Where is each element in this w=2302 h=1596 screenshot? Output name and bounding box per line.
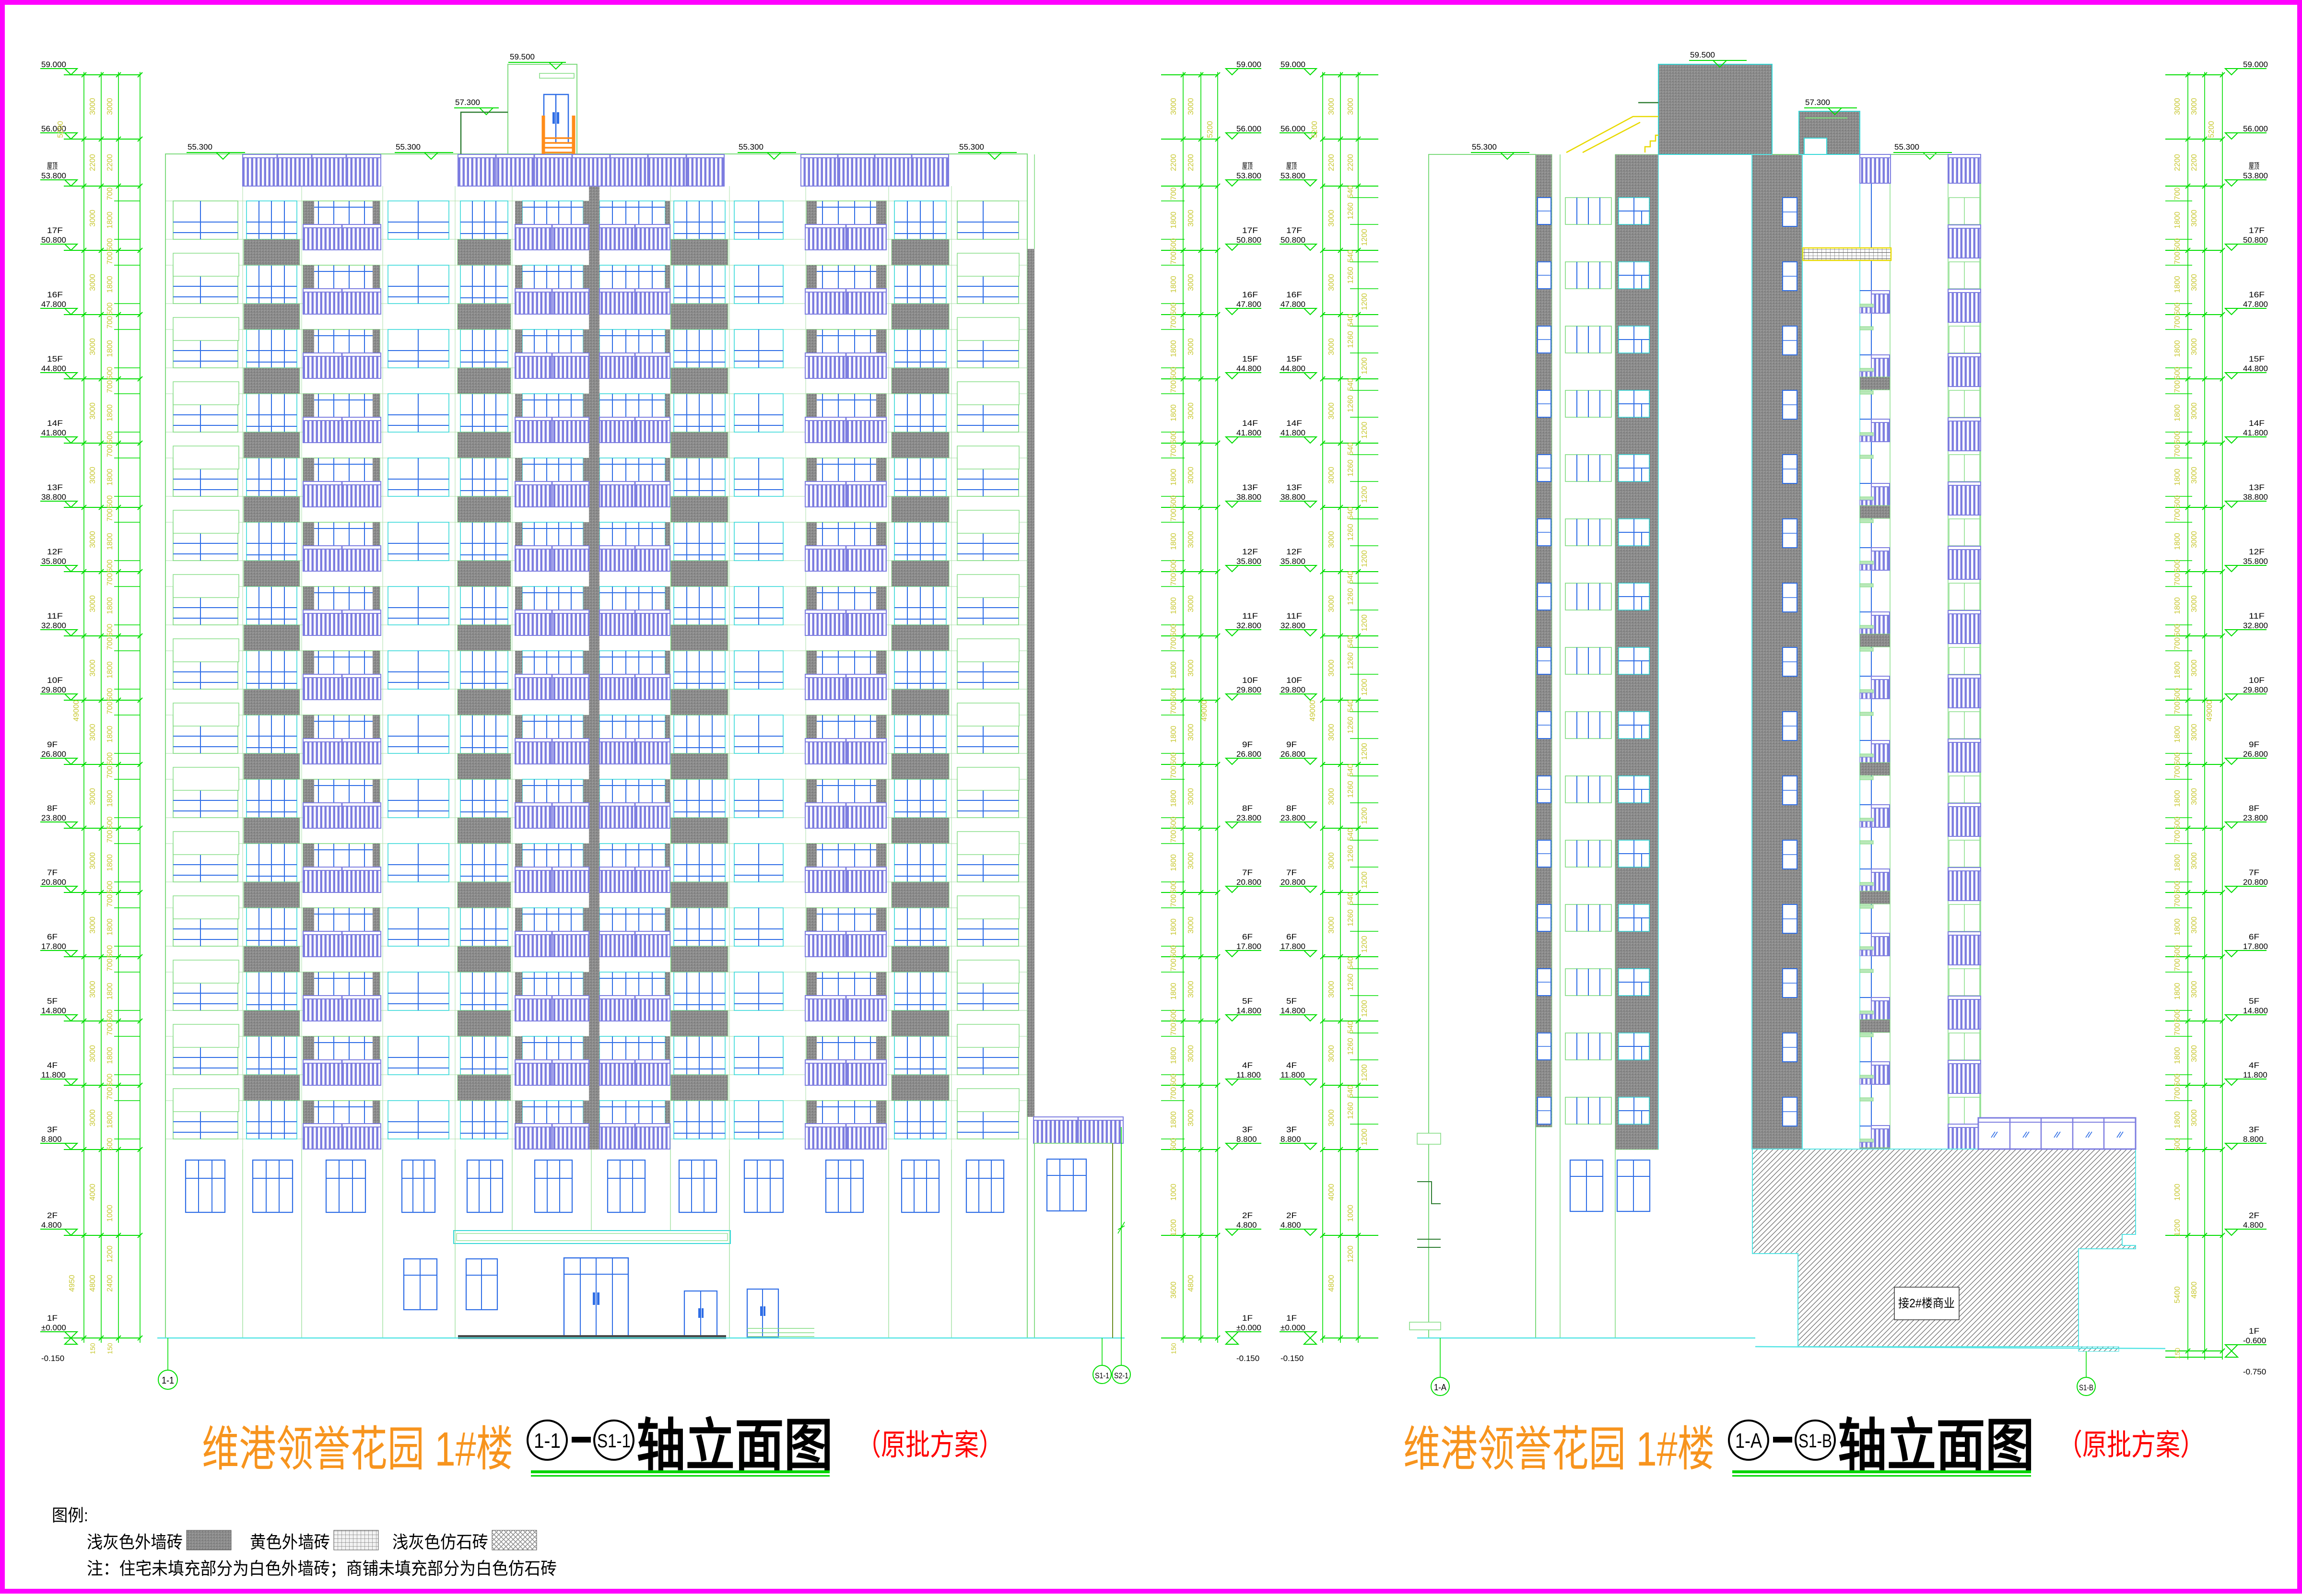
svg-text:57.300: 57.300 <box>455 98 480 107</box>
svg-text:10F: 10F <box>47 676 63 685</box>
svg-text:4.800: 4.800 <box>41 1220 62 1230</box>
svg-text:1800: 1800 <box>106 790 114 807</box>
svg-text:1800: 1800 <box>1170 1047 1178 1064</box>
svg-text:1260: 1260 <box>1347 781 1355 798</box>
svg-text:500: 500 <box>2173 1009 2182 1022</box>
svg-text:14.800: 14.800 <box>2243 1006 2268 1015</box>
svg-text:1800: 1800 <box>2173 533 2182 550</box>
svg-text:11F: 11F <box>1242 611 1258 621</box>
svg-text:500: 500 <box>2173 495 2182 508</box>
svg-text:维港领誉花园 1#楼: 维港领誉花园 1#楼 <box>1403 1422 1715 1476</box>
svg-text:1200: 1200 <box>1361 614 1369 632</box>
svg-text:3000: 3000 <box>1187 659 1195 677</box>
svg-text:2200: 2200 <box>1170 154 1178 171</box>
svg-text:5F: 5F <box>2249 997 2259 1006</box>
svg-text:700: 700 <box>1170 188 1178 200</box>
svg-text:1000: 1000 <box>1170 1184 1178 1201</box>
svg-text:16F: 16F <box>1286 290 1302 299</box>
svg-text:44.800: 44.800 <box>1280 364 1305 373</box>
svg-text:7F: 7F <box>47 868 58 877</box>
svg-text:S2-1: S2-1 <box>1114 1371 1128 1380</box>
svg-text:1800: 1800 <box>1170 661 1178 679</box>
svg-text:1000: 1000 <box>1347 1205 1355 1222</box>
svg-text:1800: 1800 <box>2173 276 2182 293</box>
svg-text:59.000: 59.000 <box>41 60 66 69</box>
svg-text:41.800: 41.800 <box>1280 428 1305 437</box>
svg-text:3000: 3000 <box>1187 402 1195 420</box>
svg-text:44.800: 44.800 <box>41 364 66 373</box>
svg-text:3000: 3000 <box>2190 659 2198 677</box>
svg-text:23.800: 23.800 <box>2243 813 2268 822</box>
svg-text:1800: 1800 <box>2173 918 2182 936</box>
svg-text:16F: 16F <box>2249 290 2265 299</box>
svg-text:3000: 3000 <box>89 338 97 355</box>
svg-text:500: 500 <box>2173 367 2182 380</box>
svg-text:700: 700 <box>106 445 114 458</box>
svg-text:540: 540 <box>1347 378 1355 391</box>
svg-text:3000: 3000 <box>1347 98 1355 115</box>
svg-text:20.800: 20.800 <box>1280 878 1305 887</box>
svg-text:4800: 4800 <box>2190 1281 2198 1299</box>
svg-text:1-1: 1-1 <box>534 1429 561 1453</box>
svg-text:3F: 3F <box>2249 1125 2259 1134</box>
svg-text:1200: 1200 <box>1361 871 1369 889</box>
svg-text:53.800: 53.800 <box>1280 171 1305 180</box>
svg-text:1200: 1200 <box>1347 1245 1355 1263</box>
svg-text:7F: 7F <box>1286 868 1297 877</box>
svg-text:-0.150: -0.150 <box>1236 1354 1259 1363</box>
svg-text:700: 700 <box>2173 188 2182 200</box>
svg-text:50.800: 50.800 <box>41 235 66 245</box>
svg-text:700: 700 <box>106 188 114 200</box>
svg-text:540: 540 <box>1347 443 1355 456</box>
svg-text:500: 500 <box>1170 688 1178 701</box>
svg-text:1-1: 1-1 <box>162 1375 174 1386</box>
svg-text:38.800: 38.800 <box>2243 493 2268 502</box>
svg-text:3000: 3000 <box>2190 1045 2198 1062</box>
svg-text:5200: 5200 <box>57 121 65 138</box>
svg-text:1800: 1800 <box>106 533 114 550</box>
svg-text:59.000: 59.000 <box>1280 60 1305 69</box>
svg-text:1200: 1200 <box>1361 679 1369 696</box>
svg-text:700: 700 <box>1170 959 1178 972</box>
svg-text:4000: 4000 <box>89 1184 97 1201</box>
svg-text:图例:: 图例: <box>52 1506 88 1525</box>
svg-text:3000: 3000 <box>1327 788 1336 805</box>
svg-text:17F: 17F <box>47 226 63 235</box>
svg-text:17F: 17F <box>1242 226 1258 235</box>
svg-text:3000: 3000 <box>1187 98 1195 115</box>
svg-text:500: 500 <box>2173 817 2182 830</box>
svg-text:700: 700 <box>1170 445 1178 458</box>
svg-text:500: 500 <box>2173 560 2182 573</box>
svg-text:1260: 1260 <box>1347 974 1355 991</box>
svg-text:500: 500 <box>1170 560 1178 573</box>
svg-text:700: 700 <box>2173 959 2182 972</box>
svg-text:1800: 1800 <box>106 726 114 743</box>
svg-text:150: 150 <box>89 1343 96 1354</box>
svg-text:49000: 49000 <box>72 700 81 722</box>
svg-text:14F: 14F <box>47 419 63 428</box>
svg-text:9F: 9F <box>2249 740 2259 749</box>
svg-text:3000: 3000 <box>1327 1109 1336 1127</box>
svg-text:1200: 1200 <box>1361 229 1369 246</box>
svg-text:4F: 4F <box>1242 1061 1253 1070</box>
svg-text:700: 700 <box>1170 894 1178 907</box>
svg-text:700: 700 <box>106 702 114 715</box>
svg-text:1800: 1800 <box>1170 276 1178 293</box>
svg-text:接2#楼商业: 接2#楼商业 <box>1898 1297 1955 1310</box>
svg-text:35.800: 35.800 <box>1280 557 1305 566</box>
svg-text:1200: 1200 <box>106 1245 114 1263</box>
svg-text:500: 500 <box>1170 367 1178 380</box>
svg-text:9F: 9F <box>1286 740 1297 749</box>
svg-text:56.000: 56.000 <box>1280 124 1305 133</box>
svg-text:540: 540 <box>1347 892 1355 905</box>
svg-text:12F: 12F <box>2249 547 2265 556</box>
svg-text:700: 700 <box>106 316 114 329</box>
svg-text:1800: 1800 <box>1170 854 1178 871</box>
svg-text:1800: 1800 <box>2173 1111 2182 1128</box>
svg-text:1800: 1800 <box>1170 1111 1178 1128</box>
svg-text:500: 500 <box>1170 945 1178 958</box>
svg-text:1800: 1800 <box>1170 469 1178 486</box>
svg-text:-0.600: -0.600 <box>2243 1336 2266 1345</box>
svg-text:1200: 1200 <box>1361 936 1369 953</box>
svg-text:17.800: 17.800 <box>41 942 66 951</box>
svg-text:1F: 1F <box>2249 1326 2259 1336</box>
svg-text:500: 500 <box>1170 431 1178 444</box>
svg-text:1800: 1800 <box>106 211 114 229</box>
svg-text:1800: 1800 <box>2173 726 2182 743</box>
svg-text:57.300: 57.300 <box>1805 98 1830 107</box>
svg-text:540: 540 <box>1347 764 1355 777</box>
svg-text:2F: 2F <box>1242 1211 1253 1220</box>
svg-text:3000: 3000 <box>89 659 97 677</box>
svg-text:1200: 1200 <box>1361 422 1369 439</box>
svg-text:3000: 3000 <box>1327 852 1336 869</box>
svg-text:1260: 1260 <box>1347 909 1355 927</box>
svg-text:3F: 3F <box>47 1125 58 1134</box>
svg-text:53.800: 53.800 <box>2243 171 2268 180</box>
svg-text:500: 500 <box>2173 752 2182 765</box>
svg-text:13F: 13F <box>47 483 63 492</box>
svg-text:500: 500 <box>2173 945 2182 958</box>
svg-text:3000: 3000 <box>1327 98 1336 115</box>
svg-text:11.800: 11.800 <box>41 1070 66 1080</box>
svg-text:500: 500 <box>106 881 114 894</box>
svg-text:700: 700 <box>1170 637 1178 650</box>
svg-text:3000: 3000 <box>1187 916 1195 934</box>
svg-text:1200: 1200 <box>1361 1064 1369 1081</box>
svg-text:1800: 1800 <box>106 276 114 293</box>
svg-text:700: 700 <box>106 830 114 843</box>
svg-text:500: 500 <box>106 431 114 444</box>
svg-text:540: 540 <box>1347 314 1355 327</box>
svg-text:3000: 3000 <box>2190 724 2198 741</box>
svg-text:700: 700 <box>106 894 114 907</box>
svg-text:5200: 5200 <box>1206 121 1214 138</box>
svg-text:150: 150 <box>1170 1343 1177 1354</box>
svg-text:3000: 3000 <box>1187 724 1195 741</box>
svg-text:8.800: 8.800 <box>2243 1135 2264 1144</box>
svg-text:1260: 1260 <box>1347 588 1355 605</box>
svg-text:1800: 1800 <box>106 1047 114 1064</box>
svg-text:55.300: 55.300 <box>1472 142 1497 152</box>
svg-text:1200: 1200 <box>1361 1128 1369 1146</box>
svg-text:3000: 3000 <box>89 788 97 805</box>
svg-text:3000: 3000 <box>89 595 97 612</box>
svg-text:15F: 15F <box>1286 354 1302 364</box>
svg-text:3000: 3000 <box>1187 338 1195 355</box>
svg-text:9F: 9F <box>47 740 58 749</box>
svg-text:1800: 1800 <box>1170 340 1178 357</box>
svg-text:13F: 13F <box>1242 483 1258 492</box>
svg-text:1F: 1F <box>1242 1314 1253 1323</box>
svg-text:1800: 1800 <box>1170 726 1178 743</box>
svg-text:3000: 3000 <box>89 531 97 548</box>
svg-text:1000: 1000 <box>106 1205 114 1222</box>
svg-text:700: 700 <box>106 252 114 265</box>
svg-text:53.800: 53.800 <box>41 171 66 180</box>
svg-text:8.800: 8.800 <box>1280 1135 1301 1144</box>
svg-text:55.300: 55.300 <box>959 142 984 152</box>
svg-text:2F: 2F <box>1286 1211 1297 1220</box>
svg-text:6F: 6F <box>47 932 58 941</box>
svg-text:屋顶: 屋顶 <box>2249 162 2259 171</box>
svg-text:11F: 11F <box>47 611 63 621</box>
svg-text:8F: 8F <box>1286 804 1297 813</box>
svg-text:1200: 1200 <box>1361 1000 1369 1017</box>
svg-text:3000: 3000 <box>2190 595 2198 612</box>
svg-text:3000: 3000 <box>1327 724 1336 741</box>
svg-text:10F: 10F <box>2249 676 2265 685</box>
svg-text:14F: 14F <box>1286 419 1302 428</box>
svg-text:500: 500 <box>1170 303 1178 316</box>
svg-text:1800: 1800 <box>106 983 114 1000</box>
svg-text:500: 500 <box>2173 1074 2182 1087</box>
svg-text:20.800: 20.800 <box>2243 878 2268 887</box>
svg-text:700: 700 <box>1170 252 1178 265</box>
svg-text:500: 500 <box>1170 1009 1178 1022</box>
svg-text:1F: 1F <box>1286 1314 1297 1323</box>
svg-text:500: 500 <box>2173 303 2182 316</box>
svg-text:3000: 3000 <box>2190 981 2198 998</box>
svg-text:1260: 1260 <box>1347 395 1355 412</box>
svg-text:1800: 1800 <box>2173 854 2182 871</box>
svg-text:3000: 3000 <box>2190 916 2198 934</box>
svg-text:4F: 4F <box>2249 1061 2259 1070</box>
svg-text:1200: 1200 <box>1170 1219 1178 1236</box>
svg-text:17.800: 17.800 <box>1236 942 1261 951</box>
svg-text:500: 500 <box>2173 1138 2182 1151</box>
svg-text:4F: 4F <box>47 1061 58 1070</box>
svg-text:浅灰色外墙砖: 浅灰色外墙砖 <box>87 1532 183 1552</box>
svg-text:14.800: 14.800 <box>1236 1006 1261 1015</box>
svg-text:±0.000: ±0.000 <box>1236 1323 1261 1332</box>
svg-text:5F: 5F <box>1242 997 1253 1006</box>
svg-text:47.800: 47.800 <box>1236 300 1261 309</box>
svg-text:12F: 12F <box>47 547 63 556</box>
svg-text:2200: 2200 <box>2190 154 2198 171</box>
svg-text:540: 540 <box>1347 957 1355 970</box>
svg-text:1800: 1800 <box>2173 340 2182 357</box>
svg-text:44.800: 44.800 <box>2243 364 2268 373</box>
svg-text:500: 500 <box>1170 1074 1178 1087</box>
svg-text:3000: 3000 <box>1170 98 1178 115</box>
svg-text:55.300: 55.300 <box>739 142 763 152</box>
svg-text:1200: 1200 <box>2173 1219 2182 1236</box>
svg-text:15F: 15F <box>47 354 63 364</box>
svg-text:1800: 1800 <box>106 661 114 679</box>
svg-text:500: 500 <box>1170 881 1178 894</box>
svg-text:1800: 1800 <box>106 469 114 486</box>
svg-text:1800: 1800 <box>106 854 114 871</box>
svg-text:700: 700 <box>1170 573 1178 586</box>
svg-text:3000: 3000 <box>2190 274 2198 291</box>
svg-text:3600: 3600 <box>1170 1281 1178 1299</box>
svg-text:1800: 1800 <box>1170 597 1178 614</box>
svg-text:49000: 49000 <box>2206 700 2214 722</box>
svg-text:700: 700 <box>2173 637 2182 650</box>
svg-text:3000: 3000 <box>1187 595 1195 612</box>
svg-text:屋顶: 屋顶 <box>1286 162 1297 171</box>
svg-text:500: 500 <box>2173 688 2182 701</box>
svg-text:55.300: 55.300 <box>1894 142 1919 152</box>
svg-text:13F: 13F <box>1286 483 1302 492</box>
svg-text:500: 500 <box>1170 495 1178 508</box>
svg-text:500: 500 <box>2173 624 2182 637</box>
svg-text:2F: 2F <box>2249 1211 2259 1220</box>
svg-text:47.800: 47.800 <box>1280 300 1305 309</box>
svg-text:12F: 12F <box>1242 547 1258 556</box>
svg-text:500: 500 <box>1170 752 1178 765</box>
svg-text:500: 500 <box>106 624 114 637</box>
svg-text:4800: 4800 <box>1327 1275 1336 1292</box>
svg-text:26.800: 26.800 <box>1236 750 1261 759</box>
svg-text:500: 500 <box>1170 817 1178 830</box>
svg-text:3000: 3000 <box>89 274 97 291</box>
svg-text:53.800: 53.800 <box>1236 171 1261 180</box>
svg-text:-0.150: -0.150 <box>41 1354 64 1363</box>
svg-text:700: 700 <box>1170 316 1178 329</box>
svg-text:700: 700 <box>1170 1023 1178 1036</box>
svg-text:540: 540 <box>1347 571 1355 584</box>
svg-text:700: 700 <box>2173 894 2182 907</box>
svg-text:700: 700 <box>2173 252 2182 265</box>
svg-text:±0.000: ±0.000 <box>41 1323 66 1332</box>
svg-text:500: 500 <box>106 238 114 251</box>
svg-text:2F: 2F <box>47 1211 58 1220</box>
svg-text:14.800: 14.800 <box>1280 1006 1305 1015</box>
svg-text:150: 150 <box>106 1343 114 1354</box>
svg-text:4F: 4F <box>1286 1061 1297 1070</box>
svg-text:23.800: 23.800 <box>1280 813 1305 822</box>
svg-text:-0.150: -0.150 <box>1280 1354 1304 1363</box>
svg-text:4800: 4800 <box>1187 1275 1195 1292</box>
svg-text:4000: 4000 <box>1327 1184 1336 1201</box>
svg-text:540: 540 <box>1347 250 1355 263</box>
svg-text:3000: 3000 <box>89 981 97 998</box>
svg-text:41.800: 41.800 <box>1236 428 1261 437</box>
svg-text:500: 500 <box>106 817 114 830</box>
svg-text:15F: 15F <box>1242 354 1258 364</box>
svg-text:1800: 1800 <box>2173 211 2182 229</box>
svg-text:55.300: 55.300 <box>396 142 421 152</box>
svg-text:3000: 3000 <box>1187 467 1195 484</box>
svg-text:7F: 7F <box>2249 868 2259 877</box>
svg-text:3000: 3000 <box>89 1109 97 1127</box>
svg-text:47.800: 47.800 <box>41 300 66 309</box>
svg-text:3F: 3F <box>1242 1125 1253 1134</box>
svg-text:3000: 3000 <box>1327 981 1336 998</box>
svg-text:6F: 6F <box>1286 932 1297 941</box>
svg-text:41.800: 41.800 <box>41 428 66 437</box>
svg-text:5F: 5F <box>1286 997 1297 1006</box>
svg-text:3000: 3000 <box>2190 852 2198 869</box>
svg-text:1200: 1200 <box>1361 357 1369 375</box>
svg-text:700: 700 <box>2173 316 2182 329</box>
svg-text:7F: 7F <box>1242 868 1253 877</box>
svg-text:2200: 2200 <box>106 154 114 171</box>
svg-text:700: 700 <box>1170 830 1178 843</box>
svg-text:500: 500 <box>106 752 114 765</box>
svg-text:4950: 4950 <box>68 1275 76 1292</box>
svg-text:1-A: 1-A <box>1434 1383 1446 1392</box>
svg-text:700: 700 <box>1170 702 1178 715</box>
svg-text:3000: 3000 <box>1327 1045 1336 1062</box>
svg-text:3000: 3000 <box>89 98 97 115</box>
svg-text:29.800: 29.800 <box>1236 685 1261 694</box>
svg-text:3000: 3000 <box>2190 531 2198 548</box>
svg-text:（原批方案）: （原批方案） <box>2058 1429 2205 1462</box>
svg-text:47.800: 47.800 <box>2243 300 2268 309</box>
svg-text:50.800: 50.800 <box>2243 235 2268 245</box>
svg-text:1800: 1800 <box>2173 404 2182 422</box>
svg-text:500: 500 <box>106 303 114 316</box>
svg-text:8F: 8F <box>2249 804 2259 813</box>
svg-text:3000: 3000 <box>2173 98 2182 115</box>
svg-text:1260: 1260 <box>1347 459 1355 477</box>
svg-text:1800: 1800 <box>2173 1047 2182 1064</box>
svg-text:3000: 3000 <box>2190 467 2198 484</box>
svg-text:49000: 49000 <box>1200 700 1209 722</box>
svg-text:32.800: 32.800 <box>1280 621 1305 630</box>
svg-text:56.000: 56.000 <box>2243 124 2268 133</box>
svg-text:500: 500 <box>1170 238 1178 251</box>
svg-text:8F: 8F <box>1242 804 1253 813</box>
svg-text:3000: 3000 <box>2190 402 2198 420</box>
svg-text:屋顶: 屋顶 <box>1242 162 1253 171</box>
svg-text:50.800: 50.800 <box>1236 235 1261 245</box>
svg-text:S1-1: S1-1 <box>597 1431 631 1452</box>
svg-text:700: 700 <box>106 1023 114 1036</box>
svg-text:13F: 13F <box>2249 483 2265 492</box>
svg-text:±0.000: ±0.000 <box>1280 1323 1305 1332</box>
svg-text:3000: 3000 <box>1327 338 1336 355</box>
svg-text:5200: 5200 <box>1311 121 1319 138</box>
svg-text:1260: 1260 <box>1347 845 1355 862</box>
svg-text:1800: 1800 <box>2173 790 2182 807</box>
svg-text:32.800: 32.800 <box>41 621 66 630</box>
svg-text:1800: 1800 <box>106 597 114 614</box>
svg-text:1200: 1200 <box>1361 550 1369 567</box>
svg-text:3000: 3000 <box>1327 595 1336 612</box>
svg-text:2200: 2200 <box>1327 154 1336 171</box>
svg-text:6F: 6F <box>1242 932 1253 941</box>
svg-text:700: 700 <box>2173 830 2182 843</box>
svg-text:11F: 11F <box>1286 611 1302 621</box>
